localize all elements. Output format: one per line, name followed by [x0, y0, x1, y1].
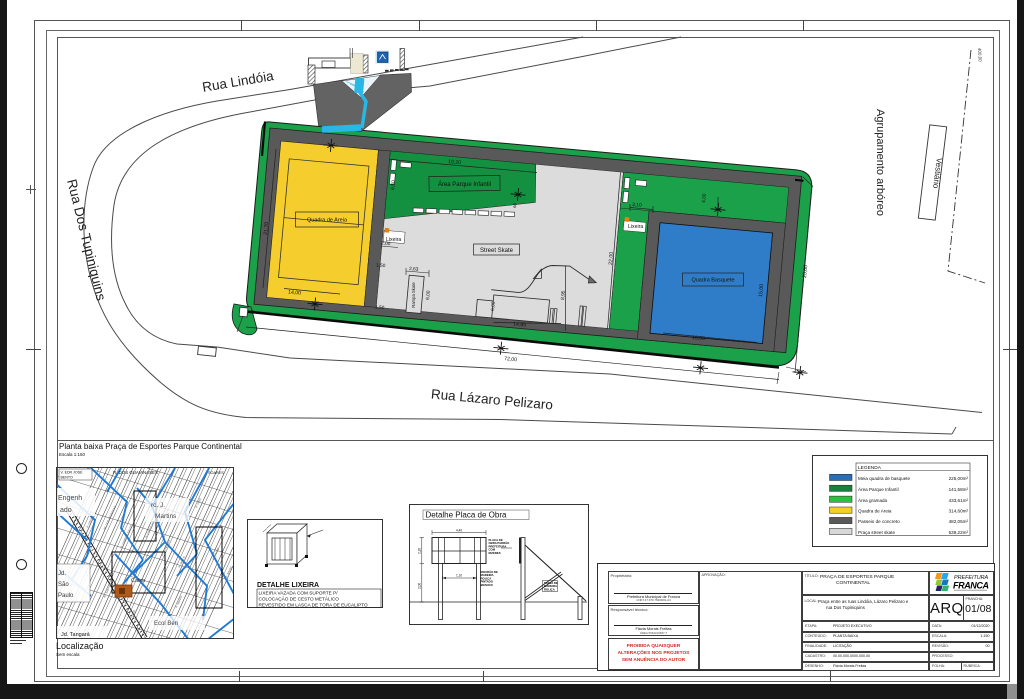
svg-text:DETALHE LIXEIRA: DETALHE LIXEIRA	[257, 582, 319, 589]
svg-text:14,00: 14,00	[288, 290, 302, 297]
svg-text:V. EDR JOSÉ: V. EDR JOSÉ	[61, 470, 84, 475]
svg-text:19,20: 19,20	[448, 159, 462, 166]
svg-text:141,58m²: 141,58m²	[949, 487, 969, 492]
svg-text:Ecol Ben: Ecol Ben	[154, 621, 178, 627]
svg-text:FRANCA: FRANCA	[953, 581, 989, 591]
svg-text:4,00: 4,00	[701, 193, 708, 203]
svg-text:Lixeira: Lixeira	[386, 237, 401, 243]
svg-text:6,00: 6,00	[425, 290, 432, 300]
svg-text:2,63: 2,63	[409, 266, 419, 273]
svg-text:1,10: 1,10	[456, 574, 462, 578]
svg-text:21,70: 21,70	[263, 222, 270, 236]
svg-text:REVESTIDO EM LASCA DE TORA: REVESTIDO EM LASCA DE TORA DE EUCALIPTO	[259, 603, 369, 608]
svg-text:72,00: 72,00	[504, 356, 518, 363]
svg-text:LEGENDA: LEGENDA	[858, 465, 882, 471]
svg-text:Engenh: Engenh	[58, 495, 82, 502]
svg-text:Rampa Skate: Rampa Skate	[411, 282, 416, 308]
svg-text:Jd. Tangará: Jd. Tangará	[61, 632, 91, 638]
svg-text:Martins: Martins	[155, 513, 177, 520]
svg-text:Quadra de Areia: Quadra de Areia	[858, 509, 892, 514]
svg-text:1,50: 1,50	[375, 305, 385, 312]
svg-text:Área Parque Infantil: Área Parque Infantil	[858, 486, 899, 492]
svg-text:COLOCAÇÃO DE CESTO METÁLICO: COLOCAÇÃO DE CESTO METÁLICO	[259, 596, 340, 602]
svg-text:Meia quadra de basquete: Meia quadra de basquete	[858, 476, 911, 481]
svg-text:R. DOS GUAIANASES: R. DOS GUAIANASES	[113, 470, 158, 475]
svg-text:Quadra de Areia: Quadra de Areia	[307, 218, 348, 224]
svg-text:25,00: 25,00	[802, 265, 809, 279]
svg-text:R. BRASIL: R. BRASIL	[224, 564, 233, 578]
svg-text:Passeio de concreto: Passeio de concreto	[858, 519, 900, 524]
svg-text:433,61m²: 433,61m²	[949, 498, 969, 503]
svg-text:Detalhe Placa de Obra: Detalhe Placa de Obra	[426, 511, 507, 520]
svg-text:DIZERES: DIZERES	[489, 551, 501, 555]
svg-text:Jd.: Jd.	[58, 571, 66, 577]
svg-text:Área gramada: Área gramada	[858, 497, 888, 503]
svg-text:Área Parque Infantil: Área Parque Infantil	[438, 181, 491, 188]
svg-text:R. CARVALHO: R. CARVALHO	[144, 520, 155, 538]
svg-text:314,60m²: 314,60m²	[949, 509, 969, 514]
svg-text:Quadra Basquete: Quadra Basquete	[691, 278, 734, 284]
svg-text:Paulo: Paulo	[58, 593, 74, 599]
svg-text:Praça street skate: Praça street skate	[858, 530, 895, 535]
svg-text:225,00m²: 225,00m²	[949, 476, 969, 481]
svg-text:6,00: 6,00	[490, 301, 497, 311]
svg-text:Street Skate: Street Skate	[480, 248, 514, 254]
svg-text:SOARES: SOARES	[208, 471, 224, 475]
svg-text:4,40: 4,40	[456, 529, 462, 533]
svg-text:BENTO: BENTO	[61, 476, 74, 480]
svg-text:Caixa: Caixa	[131, 578, 146, 584]
svg-text:539,22m²: 539,22m²	[949, 530, 969, 535]
svg-text:ROLIÇA: ROLIÇA	[544, 587, 555, 591]
svg-text:15,00: 15,00	[692, 335, 706, 342]
svg-text:482,05m²: 482,05m²	[949, 519, 969, 524]
svg-text:rc. J.: rc. J.	[151, 502, 165, 509]
svg-text:ado: ado	[60, 507, 72, 514]
svg-text:São: São	[58, 582, 69, 588]
svg-text:R. AMAPA: R. AMAPA	[174, 595, 183, 608]
svg-text:1,50: 1,50	[376, 263, 386, 270]
svg-text:AV. SANTOS: AV. SANTOS	[102, 582, 112, 598]
svg-text:22,00: 22,00	[608, 252, 615, 265]
svg-text:2,20: 2,20	[418, 548, 422, 554]
svg-text:15,00: 15,00	[758, 284, 765, 298]
svg-text:8,95: 8,95	[560, 290, 567, 300]
svg-text:14,85: 14,85	[513, 322, 526, 329]
svg-text:LIXEIRA VAZADA COM SUPORTE: LIXEIRA VAZADA COM SUPORTE P/	[259, 591, 339, 596]
svg-text:2,00: 2,00	[418, 583, 422, 589]
svg-text:60: 60	[512, 202, 517, 208]
svg-text:BRANCO: BRANCO	[481, 583, 494, 587]
svg-text:6,50: 6,50	[390, 180, 397, 190]
svg-text:3,10: 3,10	[632, 202, 642, 209]
svg-text:Lixeira: Lixeira	[628, 224, 643, 230]
